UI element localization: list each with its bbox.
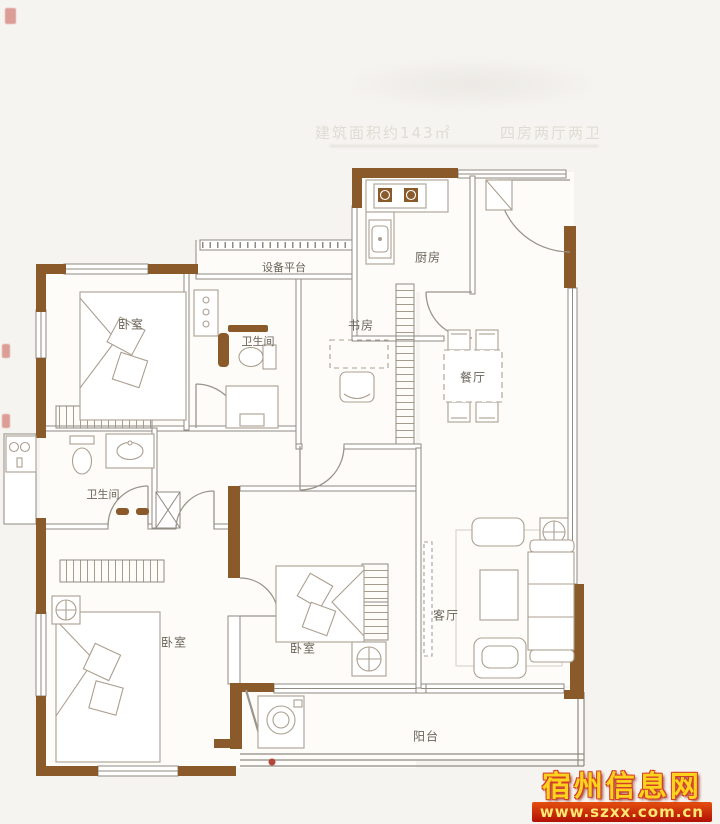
bookshelf-icon	[396, 284, 414, 444]
bed-icon	[52, 596, 160, 762]
drain-mark	[269, 759, 276, 766]
room-label-bathroom-top: 卫生间	[242, 333, 275, 349]
floor-plan-svg	[0, 0, 720, 824]
tv-cabinet-icon	[424, 542, 432, 656]
site-watermark-url: www.szxx.com.cn	[532, 802, 712, 822]
room-label-dining: 餐厅	[460, 369, 486, 386]
coffee-table-icon	[480, 570, 518, 620]
floor-plan-page: 建筑面积约143㎡ 四房两厅两卫	[0, 0, 720, 824]
room-label-bedroom-top-left: 卧室	[118, 316, 144, 333]
room-label-equipment-platform: 设备平台	[262, 259, 306, 275]
room-label-kitchen: 厨房	[415, 249, 441, 266]
room-label-living: 客厅	[433, 607, 459, 624]
room-label-bathroom-mid: 卫生间	[87, 486, 120, 502]
wardrobe-icon	[60, 560, 164, 582]
site-watermark-name: 宿州信息网	[532, 771, 712, 801]
bed-icon	[80, 292, 186, 420]
room-label-bedroom-bottom-left: 卧室	[161, 634, 187, 651]
site-watermark: 宿州信息网 www.szxx.com.cn	[532, 771, 712, 822]
fridge-icon	[486, 180, 512, 210]
laundry-counter-icon	[6, 436, 36, 472]
room-label-study: 书房	[348, 317, 374, 334]
room-label-bedroom-middle: 卧室	[290, 640, 316, 657]
room-label-balcony: 阳台	[413, 728, 439, 745]
